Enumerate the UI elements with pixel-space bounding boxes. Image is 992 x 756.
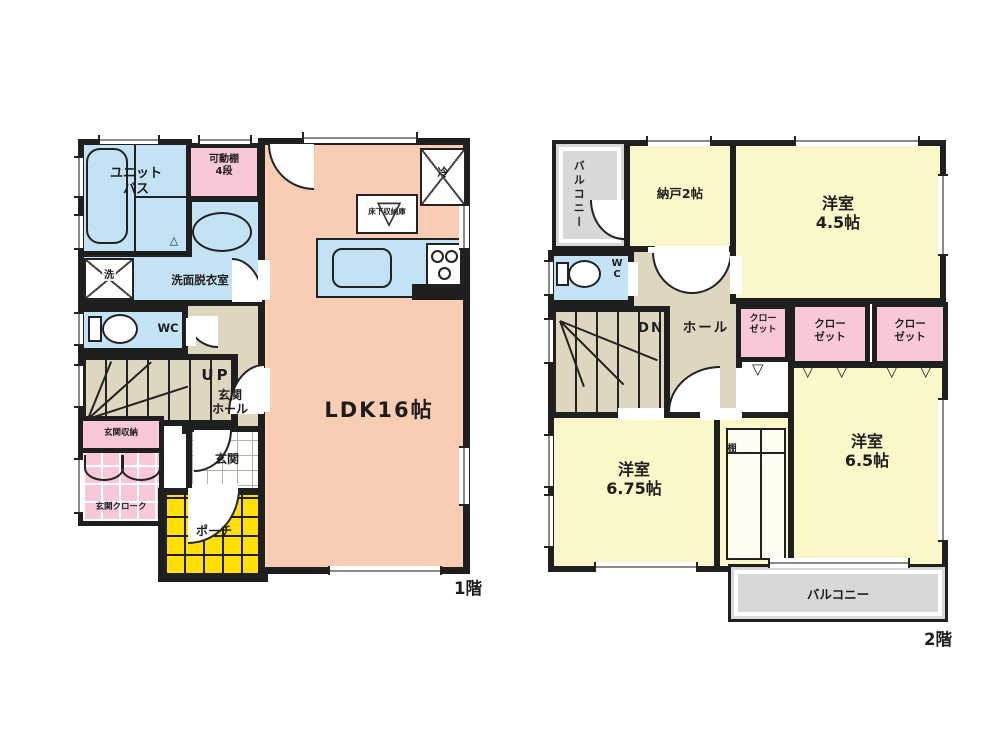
window bbox=[544, 260, 553, 296]
shelf-area bbox=[714, 412, 794, 572]
closet-3-label: クロー ゼット bbox=[876, 318, 944, 343]
dn-label: DN bbox=[632, 320, 670, 336]
entrance-cloak-label: 玄関クローク bbox=[79, 502, 163, 512]
window bbox=[198, 135, 252, 144]
kitchen-sink-icon bbox=[332, 248, 392, 288]
hall-2f-label: ホール bbox=[674, 320, 738, 336]
toilet-tank-icon bbox=[88, 316, 102, 342]
closet-door-mark: ▽ bbox=[802, 364, 814, 379]
closet-2-label: クロー ゼット bbox=[794, 318, 866, 343]
window bbox=[459, 446, 469, 506]
floor1-label: 1階 bbox=[436, 579, 500, 599]
entrance-label: 玄関 bbox=[198, 452, 256, 466]
window bbox=[74, 156, 83, 198]
cloak-door-arc bbox=[121, 455, 161, 481]
window bbox=[74, 364, 83, 408]
window bbox=[544, 318, 553, 364]
wc-label: WC bbox=[148, 322, 188, 336]
storage-room-label: 納戸2帖 bbox=[635, 186, 725, 201]
closet-1-label: クロー ゼット bbox=[740, 314, 786, 336]
window bbox=[98, 135, 160, 144]
window bbox=[328, 566, 442, 575]
window bbox=[794, 136, 920, 146]
movable-shelf-label: 可動棚 4段 bbox=[192, 154, 256, 178]
washer-label: 洗 bbox=[94, 270, 124, 282]
underfloor-storage-label: 床下収納庫 bbox=[356, 207, 418, 216]
fridge-label: 冷 bbox=[428, 166, 458, 179]
door-gap bbox=[618, 408, 664, 420]
cloak-door-arc bbox=[84, 455, 124, 481]
window bbox=[938, 174, 948, 256]
door-gap bbox=[730, 256, 742, 294]
up-label: UP bbox=[194, 366, 238, 384]
floor2-label: 2階 bbox=[906, 630, 970, 650]
room45-label: 洋室 4.5帖 bbox=[788, 194, 888, 232]
toilet-tank-icon bbox=[556, 262, 569, 286]
bath-door-mark: △ bbox=[164, 234, 184, 247]
window bbox=[544, 434, 553, 488]
window bbox=[938, 398, 948, 542]
door-gap bbox=[192, 484, 238, 494]
balcony-bottom-label: バルコニー bbox=[778, 587, 898, 602]
washroom-label: 洗面脱衣室 bbox=[140, 274, 260, 288]
kitchen-wall-notch bbox=[412, 284, 468, 300]
closet-door-mark: ▽ bbox=[752, 362, 764, 377]
window bbox=[302, 132, 418, 143]
room675-label: 洋室 6.75帖 bbox=[568, 460, 700, 498]
room65-label: 洋室 6.5帖 bbox=[804, 432, 930, 470]
toilet-bowl-icon bbox=[568, 260, 601, 288]
burner-icon bbox=[438, 267, 451, 280]
door-gap bbox=[628, 262, 638, 296]
unit-bath-label: ユニット バス bbox=[88, 166, 184, 197]
closet-door-mark: ▽ bbox=[920, 364, 932, 379]
floor-plan-2f: ▽ ▽ ▽ ▽ ▽ バルコニー 納戸2帖 洋室 4.5帖 W C DN ホール … bbox=[0, 0, 992, 756]
stair-winder-line bbox=[559, 320, 624, 385]
balcony-top-label: バルコニー bbox=[572, 152, 585, 238]
ldk-label: LDK16帖 bbox=[296, 398, 462, 423]
window bbox=[544, 494, 553, 548]
porch-label: ポーチ bbox=[186, 524, 242, 538]
window bbox=[459, 204, 469, 250]
dashed-wall bbox=[648, 247, 706, 253]
entrance-storage-label: 玄関収納 bbox=[80, 428, 162, 438]
entrance-hall-label: 玄関 ホール bbox=[200, 388, 260, 417]
closet-door-mark: ▽ bbox=[886, 364, 898, 379]
window bbox=[74, 312, 83, 346]
shelf-label: 棚 bbox=[722, 444, 742, 455]
window bbox=[74, 214, 83, 250]
window bbox=[594, 562, 698, 572]
burner-icon bbox=[445, 250, 458, 263]
burner-icon bbox=[431, 250, 444, 263]
closet-door-mark: ▽ bbox=[836, 364, 848, 379]
window bbox=[768, 558, 910, 568]
window bbox=[646, 136, 712, 146]
door-gap bbox=[736, 368, 746, 412]
wc-2f-label: W C bbox=[606, 258, 628, 280]
